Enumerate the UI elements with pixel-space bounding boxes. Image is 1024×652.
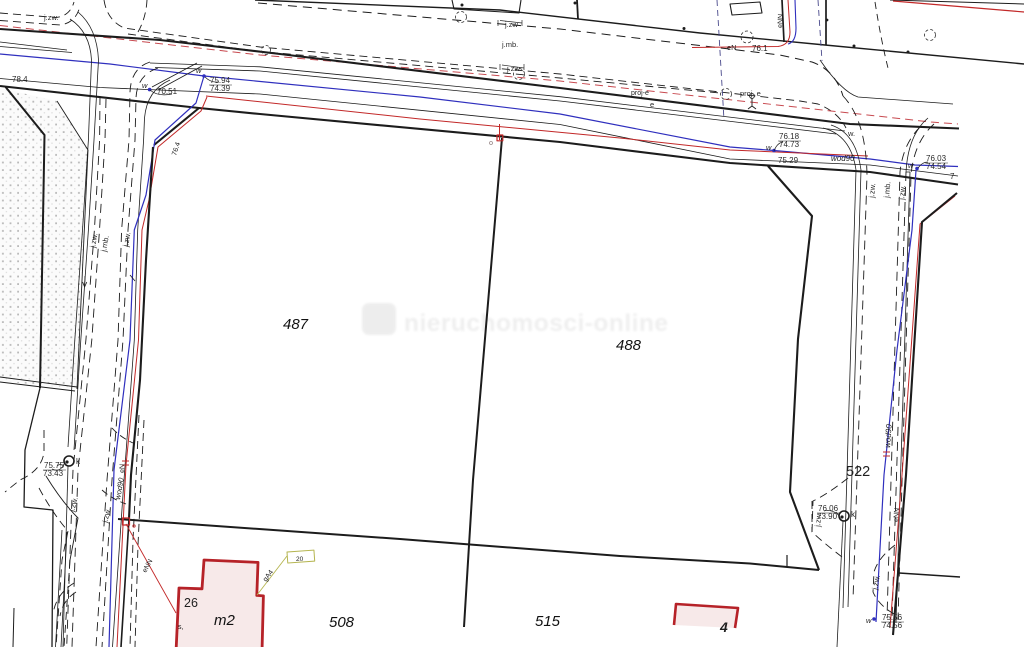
svg-text:j.mb.: j.mb. [882,181,892,199]
svg-text:proj. e: proj. e [740,89,761,98]
svg-text:74.73: 74.73 [779,140,800,149]
svg-text:508: 508 [329,614,355,631]
svg-text:wod90: wod90 [831,154,855,163]
svg-text:j.zw.: j.zw. [813,512,823,528]
svg-text:j.mb.: j.mb. [501,40,518,49]
svg-text:76.1: 76.1 [752,44,768,53]
svg-text:w: w [766,143,772,152]
svg-text:75.29: 75.29 [778,156,799,165]
svg-text:70.51: 70.51 [157,87,178,96]
svg-text:eNN: eNN [777,14,785,28]
svg-text:eNN: eNN [893,508,901,522]
svg-text:20: 20 [296,556,304,563]
svg-text:488: 488 [616,337,642,354]
svg-text:74.39: 74.39 [210,84,231,93]
svg-text:wod90: wod90 [883,423,894,448]
svg-text:7: 7 [950,172,955,181]
svg-text:eN: eN [119,464,126,473]
svg-text:4: 4 [719,619,728,635]
svg-text:m2: m2 [214,612,235,629]
svg-text:26: 26 [184,596,198,610]
svg-text:nieruchomosci-online: nieruchomosci-online [404,310,669,337]
svg-text:j.zw.: j.zw. [897,185,907,201]
svg-text:j.zw: j.zw [506,64,521,73]
svg-text:73.43: 73.43 [43,469,64,478]
svg-text:w: w [866,616,872,625]
svg-text:j.zw.: j.zw. [43,13,59,22]
svg-text:w: w [142,81,148,90]
svg-text:eN: eN [727,43,737,52]
svg-text:w: w [196,66,202,75]
svg-text:78.4: 78.4 [12,75,28,84]
svg-text:487: 487 [283,316,309,333]
svg-text:proj-e: proj-e [631,90,649,97]
svg-text:515: 515 [535,613,561,630]
svg-text:j.zw.: j.zw. [867,183,877,199]
svg-text:s,: s, [178,624,184,631]
svg-text:w.: w. [847,129,855,138]
svg-text:w: w [908,161,914,170]
svg-text:74.54: 74.54 [926,162,947,171]
svg-text:e: e [650,100,654,109]
svg-text:522: 522 [846,464,870,480]
svg-text:74.56: 74.56 [882,621,903,630]
